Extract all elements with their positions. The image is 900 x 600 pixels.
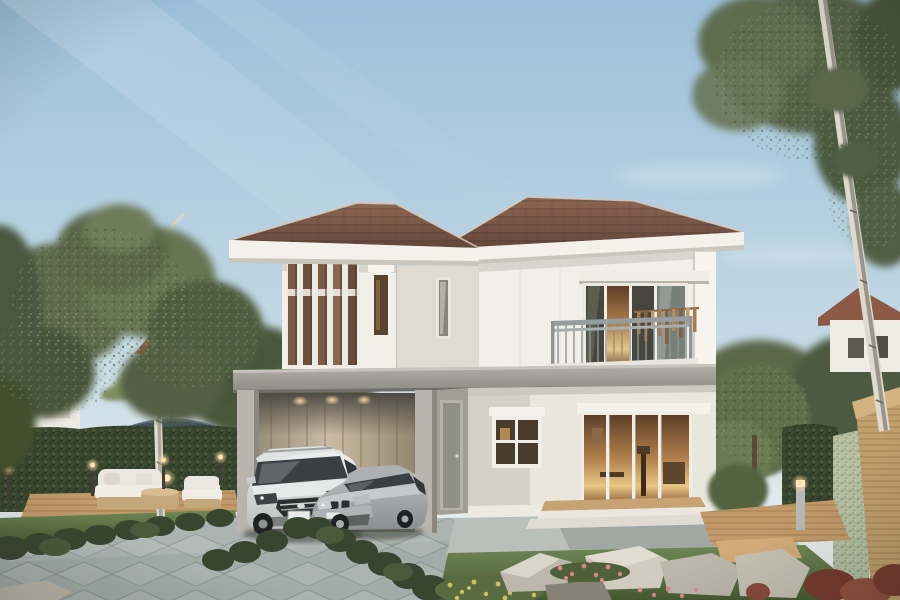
sideboard-silhouette (663, 462, 685, 484)
rail-post (551, 321, 554, 367)
leaf-cluster (808, 68, 868, 112)
suv-badge (297, 504, 305, 509)
lamp-shade (637, 446, 650, 454)
interior-shelf (376, 280, 380, 330)
window-header (489, 407, 545, 416)
alloy-wheel (259, 520, 268, 529)
cloud (615, 164, 785, 186)
window-mullion (496, 440, 538, 443)
alloy-wheel (336, 520, 344, 528)
louver-rail (286, 289, 360, 296)
downlight (292, 396, 308, 406)
table-silhouette (600, 472, 624, 477)
headlight-glint (260, 496, 264, 500)
suv-headlight (254, 493, 278, 505)
interior-hint (500, 428, 510, 440)
headlight-glint (322, 504, 325, 507)
downlight (324, 395, 340, 405)
mullion (606, 415, 609, 504)
rendered-photo (0, 0, 900, 600)
glass-warm-interior (607, 286, 630, 365)
timber-louver-screen (286, 264, 360, 366)
downlight (356, 395, 372, 405)
column-shade (432, 390, 437, 533)
ground-floor (468, 385, 718, 529)
mullion (632, 415, 635, 504)
mullion (658, 415, 661, 504)
door-handle (455, 454, 458, 457)
sofa-pillow (136, 473, 152, 485)
neighbor-window (848, 338, 864, 358)
floor-lamp (641, 452, 646, 496)
armchair-base (184, 499, 221, 508)
alloy-wheel (402, 516, 409, 523)
corner-pillar (694, 252, 716, 368)
rail-post (689, 316, 692, 362)
sofa-pillow (104, 473, 120, 485)
wall-art (592, 428, 603, 441)
leaf-cluster (832, 142, 880, 178)
window-header (368, 264, 394, 272)
scene-canvas (0, 0, 900, 600)
coffee-table-top (141, 488, 179, 496)
